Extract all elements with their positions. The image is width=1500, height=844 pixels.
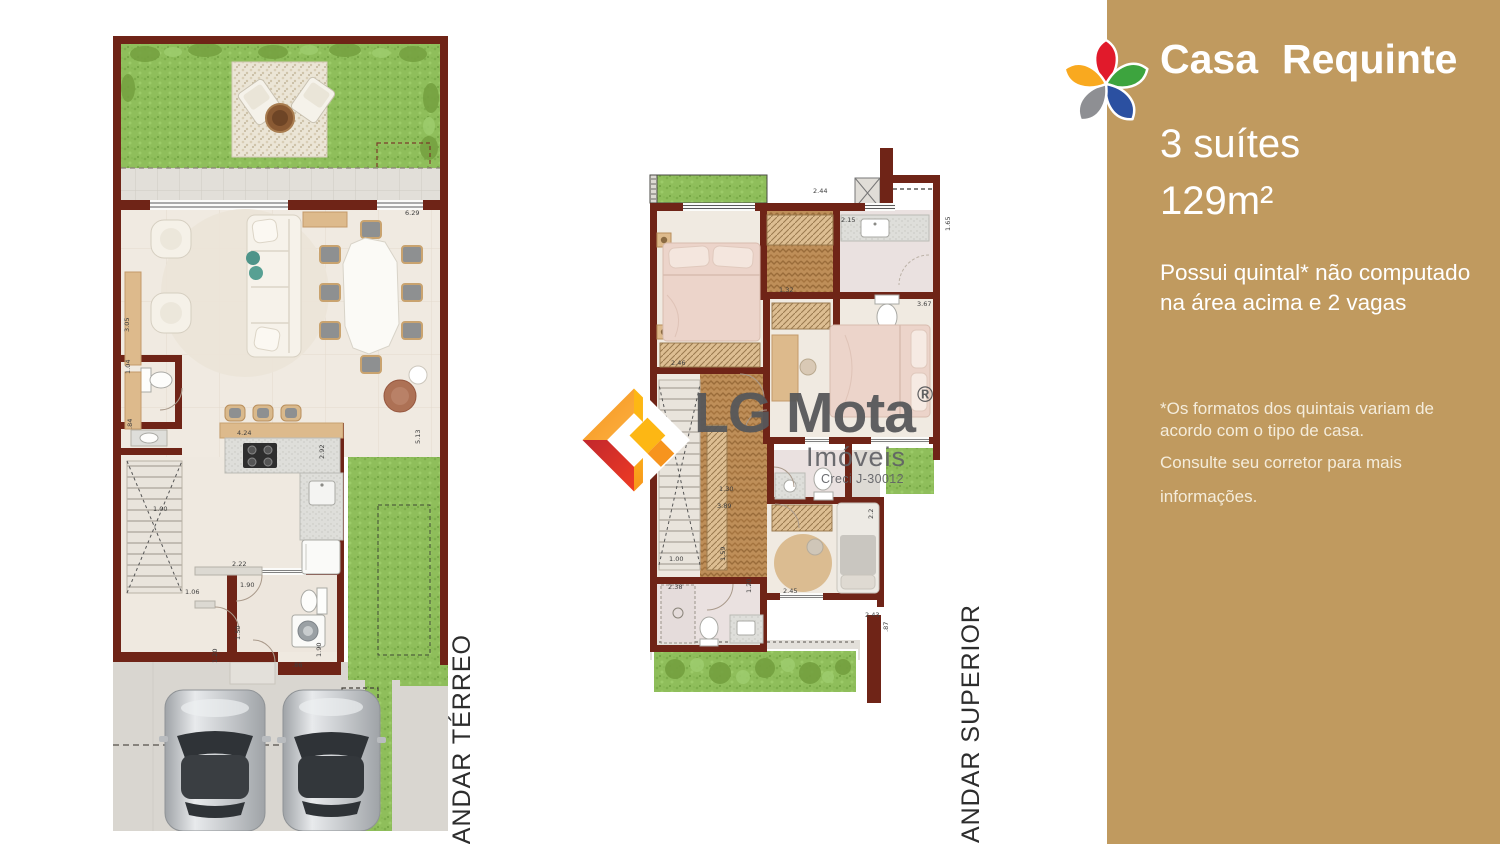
cooktop: [243, 443, 277, 468]
dimension-label: 2.45: [783, 587, 797, 595]
fire-pit: [266, 104, 294, 132]
dimension-label: 1.20: [745, 579, 753, 593]
dimension-label: 1.00: [669, 555, 683, 563]
decor-bowl: [246, 251, 260, 265]
dimension-label: 4.24: [237, 429, 251, 437]
staircase: [127, 461, 182, 593]
console-table: [303, 212, 347, 227]
dimension-label: 1.04: [124, 360, 132, 374]
footnote-line: acordo com o tipo de casa.: [1160, 420, 1450, 442]
armchair: [151, 220, 191, 258]
plan-label-terreo: ANDAR TÉRREO: [448, 634, 477, 844]
plan-label-superior: ANDAR SUPERIOR: [957, 604, 986, 843]
dimension-label: 1.59: [719, 547, 727, 561]
terrace: [121, 168, 440, 200]
decor-bowl: [249, 266, 263, 280]
lgmota-emblem-icon: [578, 384, 690, 496]
dimension-label: 2.38: [668, 583, 682, 591]
armchair: [151, 293, 191, 333]
lgmota-watermark: LG Mota® Imóveis Creci J-30012: [578, 384, 968, 509]
dimension-label: 1.90: [240, 581, 254, 589]
unit-area: 129m²: [1160, 173, 1300, 230]
dimension-label: 6.29: [405, 209, 419, 217]
car: [159, 690, 271, 831]
dimension-label: 2.46: [671, 359, 685, 367]
half-wall: [195, 567, 262, 575]
dimension-label: .84: [126, 419, 134, 429]
watermark-subtitle: Imóveis: [806, 442, 906, 473]
floor-plan-terreo: 6.293.051.04.844.242.925.131.002.221.901…: [113, 36, 448, 831]
footnote-line: Consulte seu corretor para mais: [1160, 452, 1450, 474]
kitchen-sink: [309, 481, 335, 505]
dimension-label: 1.00: [153, 505, 167, 513]
half-wall: [195, 601, 215, 608]
registered-mark: ®: [917, 382, 932, 407]
dimension-label: 2.15: [841, 216, 855, 224]
unit-stats: 3 suítes 129m²: [1160, 116, 1300, 230]
dimension-label: 1.65: [944, 217, 952, 231]
dimension-label: 1.32: [779, 286, 793, 294]
car: [277, 690, 386, 831]
bedroom-1: [657, 233, 760, 341]
side-table: [409, 366, 427, 384]
watermark-brand: LG Mota®: [694, 380, 932, 446]
suites-count: 3 suítes: [1160, 116, 1300, 173]
info-sidebar: CasaRequinte 3 suítes 129m² Possui quint…: [1107, 0, 1500, 844]
dimension-label: 1.06: [185, 588, 199, 596]
dimension-label: 1.90: [315, 643, 323, 657]
dimension-label: 1.50: [234, 626, 242, 640]
dimension-label: 2.2: [867, 509, 875, 519]
dimension-label: 1.20: [211, 649, 219, 663]
dimension-label: 3.67: [917, 300, 931, 308]
footnote-line: informações.: [1160, 486, 1450, 508]
dimension-label: 2.22: [232, 560, 246, 568]
shower: [661, 585, 695, 643]
brochure-canvas: 6.293.051.04.844.242.925.131.002.221.901…: [0, 0, 1500, 844]
fridge: [302, 540, 340, 574]
bed: [663, 243, 760, 341]
unit-description: Possui quintal* não computado na área ac…: [1160, 258, 1472, 318]
stool: [800, 359, 816, 375]
bar-stool: [225, 405, 245, 421]
round-rug: [774, 534, 832, 592]
side-yard: [348, 457, 441, 680]
dimension-label: 2.92: [318, 445, 326, 459]
dimension-label: 2.44: [813, 187, 827, 195]
watermark-creci: Creci J-30012: [821, 472, 904, 486]
dimension-label: .87: [882, 622, 890, 632]
footnote-line: *Os formatos dos quintais variam de: [1160, 398, 1450, 420]
dimension-label: 5.13: [414, 430, 422, 444]
dimension-label: 3.05: [123, 318, 131, 332]
page-title: CasaRequinte: [1160, 36, 1457, 83]
footnotes: *Os formatos dos quintais variam de acor…: [1160, 398, 1450, 508]
chair: [807, 539, 823, 555]
flower-logo-icon: [1048, 20, 1164, 136]
dimension-label: .86: [292, 661, 302, 669]
bar-stool: [253, 405, 273, 421]
dining-table: [343, 238, 399, 354]
bar-stool: [281, 405, 301, 421]
sofa: [247, 215, 301, 357]
dimension-label: 2.43: [865, 611, 879, 619]
